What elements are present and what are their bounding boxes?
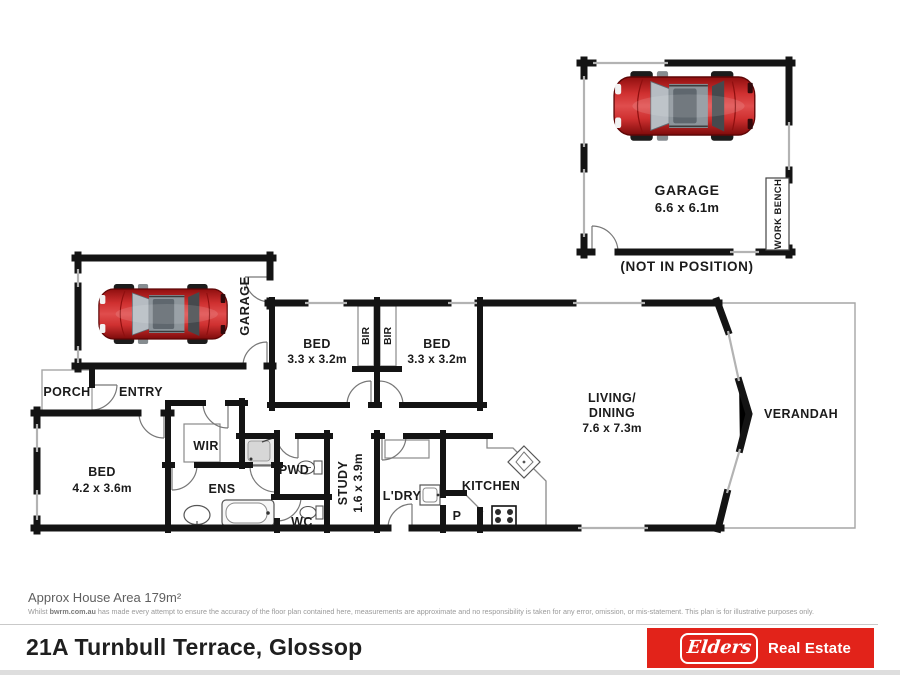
- disclaimer-site: bwrm.com.au: [50, 607, 96, 616]
- kitchen-label: KITCHEN: [462, 479, 520, 493]
- car-icon: [614, 71, 755, 141]
- bed1-dims: 3.3 x 3.2m: [287, 352, 346, 366]
- living-label-line1: LIVING/: [588, 391, 636, 405]
- bed-master-label: BED: [88, 465, 116, 479]
- disclaimer: Whilst bwrm.com.au has made every attemp…: [28, 607, 888, 616]
- bed2-dims: 3.3 x 3.2m: [407, 352, 466, 366]
- bed2-label: BED: [423, 337, 451, 351]
- front-door: [92, 385, 117, 410]
- study-dims: 1.6 x 3.9m: [351, 453, 365, 512]
- elders-logo-text: Elders: [686, 639, 752, 657]
- detached-garage-door: [592, 226, 618, 252]
- work-bench-label: WORK BENCH: [773, 179, 784, 250]
- verandah-label: VERANDAH: [764, 407, 838, 421]
- bed1-label: BED: [303, 337, 331, 351]
- floor-plan-page: GARAGE 6.6 x 6.1m WORK BENCH (NOT IN POS…: [0, 0, 900, 675]
- bir1-label: BIR: [360, 327, 372, 346]
- bed-master-dims: 4.2 x 3.6m: [72, 481, 131, 495]
- disclaimer-rest: has made every attempt to ensure the acc…: [96, 607, 814, 616]
- cooktop-icon: [492, 506, 516, 526]
- entry-label: ENTRY: [119, 385, 163, 399]
- ens-door: [172, 465, 197, 490]
- wir-label: WIR: [193, 439, 219, 453]
- not-in-position-note: (NOT IN POSITION): [620, 259, 753, 274]
- detached-garage-dims: 6.6 x 6.1m: [655, 200, 719, 215]
- laundry-label: L'DRY: [383, 489, 422, 503]
- pwd-door: [277, 436, 298, 458]
- bed-master-door: [139, 413, 164, 438]
- shower-icon: [244, 437, 275, 465]
- living-dims: 7.6 x 7.3m: [582, 421, 641, 435]
- garage-entry-door: [243, 342, 267, 366]
- bir2-label: BIR: [382, 327, 394, 346]
- bottom-strip: [0, 670, 900, 675]
- ens-east-door: [250, 466, 276, 492]
- elders-logo: Elders Real Estate: [647, 628, 874, 668]
- elders-badge-icon: Elders: [680, 633, 758, 664]
- approx-area-note: Approx House Area 179m²: [28, 590, 181, 605]
- porch-label: PORCH: [43, 385, 90, 399]
- pwd-label: PWD: [279, 463, 309, 477]
- garage-label: GARAGE: [237, 276, 252, 335]
- pantry-label: P: [453, 509, 462, 523]
- car-icon: [99, 284, 227, 344]
- vanity-basin-icon: [184, 506, 210, 527]
- laundry-tub-icon: [420, 485, 440, 505]
- laundry-bench: [385, 440, 429, 458]
- living-label-line2: DINING: [589, 406, 635, 420]
- bed1-door: [347, 381, 371, 405]
- elders-tagline: Real Estate: [768, 640, 851, 657]
- wc-label: WC: [291, 515, 313, 529]
- ens-label: ENS: [209, 482, 236, 496]
- study-label: STUDY: [336, 461, 350, 506]
- kitchen-sink-icon: [508, 446, 540, 478]
- property-address: 21A Turnbull Terrace, Glossop: [26, 634, 362, 661]
- divider-line: [0, 624, 878, 625]
- back-door: [388, 504, 412, 528]
- disclaimer-prefix: Whilst: [28, 607, 50, 616]
- detached-garage-label: GARAGE: [654, 182, 719, 198]
- floor-plan-drawing: GARAGE 6.6 x 6.1m WORK BENCH (NOT IN POS…: [0, 0, 900, 588]
- bath-icon: [222, 500, 274, 526]
- bed2-door: [379, 381, 403, 405]
